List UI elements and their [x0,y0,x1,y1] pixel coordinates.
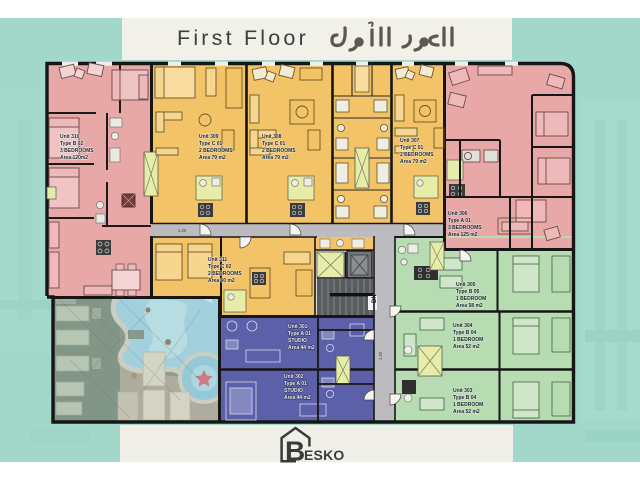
svg-text:3 BEDROOMS: 3 BEDROOMS [448,225,482,231]
svg-text:Unit 311: Unit 311 [208,257,227,263]
svg-text:Area 44 m2: Area 44 m2 [284,395,311,401]
svg-text:2 BEDROOMS: 2 BEDROOMS [400,152,434,158]
svg-text:1.20: 1.20 [378,351,383,360]
svg-text:Area 79 m2: Area 79 m2 [199,155,226,161]
svg-text:1 BEDROOM: 1 BEDROOM [453,402,483,408]
svg-text:2 BEDROOMS: 2 BEDROOMS [199,148,233,154]
svg-text:DN: DN [372,294,378,303]
svg-text:Type C 01: Type C 01 [262,141,285,147]
svg-text:Type C 01: Type C 01 [199,141,222,147]
svg-text:B: B [285,436,305,467]
svg-text:1 BEDROOM: 1 BEDROOM [453,337,483,343]
svg-text:Type A 01: Type A 01 [448,218,471,224]
svg-text:Unit 310: Unit 310 [60,134,80,140]
svg-text:Type C 01: Type C 01 [400,145,423,151]
svg-text:Area 79 m2: Area 79 m2 [262,155,289,161]
svg-text:Type B 05: Type B 05 [456,289,479,295]
svg-text:2 BEDROOMS: 2 BEDROOMS [208,271,242,277]
svg-text:Unit 308: Unit 308 [262,134,282,140]
svg-text:Unit 301: Unit 301 [288,324,308,330]
svg-text:Type B 02: Type B 02 [60,141,83,147]
svg-text:Unit 305: Unit 305 [456,282,476,288]
svg-text:Area 60 m2: Area 60 m2 [208,278,235,284]
svg-text:1.20: 1.20 [178,228,187,233]
svg-text:Area 44 m2: Area 44 m2 [288,345,315,351]
svg-text:First Floor: First Floor [177,26,309,50]
svg-text:Unit 306: Unit 306 [448,211,468,217]
svg-text:Area 58 m2: Area 58 m2 [456,303,483,309]
svg-text:STUDIO: STUDIO [284,388,303,394]
svg-text:Unit 309: Unit 309 [199,134,219,140]
svg-text:Type A 01: Type A 01 [288,331,311,337]
svg-text:Unit 302: Unit 302 [284,374,304,380]
svg-text:2 BEDROOMS: 2 BEDROOMS [262,148,296,154]
svg-text:Type C 02: Type C 02 [208,264,231,270]
svg-text:Unit 304: Unit 304 [453,323,473,329]
svg-text:Unit 303: Unit 303 [453,388,473,394]
svg-text:Type A 01: Type A 01 [284,381,307,387]
svg-text:ESKO: ESKO [304,447,344,463]
svg-text:Unit 307: Unit 307 [400,138,420,144]
svg-text:Area 120m2: Area 120m2 [60,155,88,161]
svg-text:STUDIO: STUDIO [288,338,307,344]
svg-text:Area 79 m2: Area 79 m2 [400,159,427,165]
svg-text:Area 125 m2: Area 125 m2 [448,232,478,238]
svg-text:3 BEDROOMS: 3 BEDROOMS [60,148,94,154]
svg-text:Type B 04: Type B 04 [453,395,476,401]
svg-text:1 BEDROOM: 1 BEDROOM [456,296,486,302]
svg-text:Area 52 m2: Area 52 m2 [453,409,480,415]
svg-text:Area 52 m2: Area 52 m2 [453,344,480,350]
svg-text:Type B 04: Type B 04 [453,330,476,336]
